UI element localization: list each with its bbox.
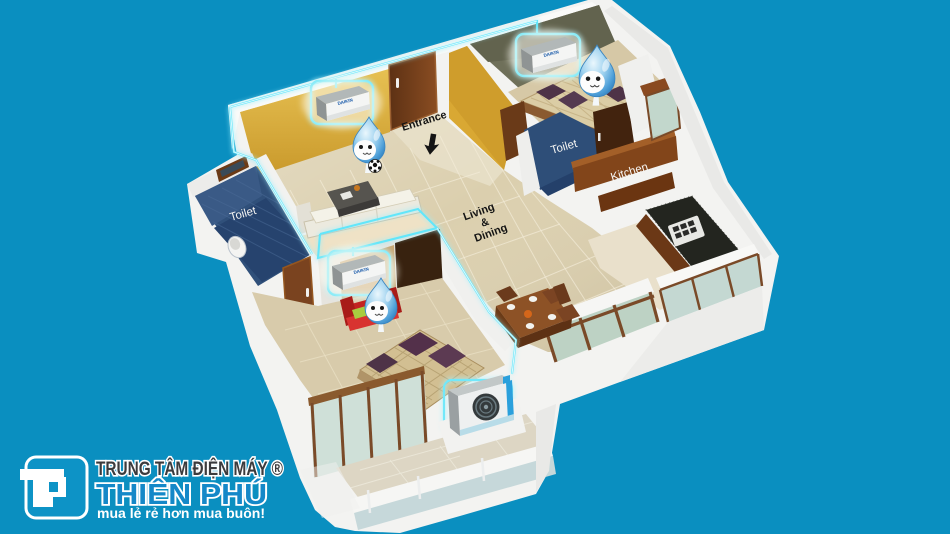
svg-text:mua lẻ rẻ hơn mua buôn!: mua lẻ rẻ hơn mua buôn! [97, 506, 265, 521]
svg-text:TRUNG TÂM ĐIỆN MÁY ®: TRUNG TÂM ĐIỆN MÁY ® [96, 458, 283, 480]
